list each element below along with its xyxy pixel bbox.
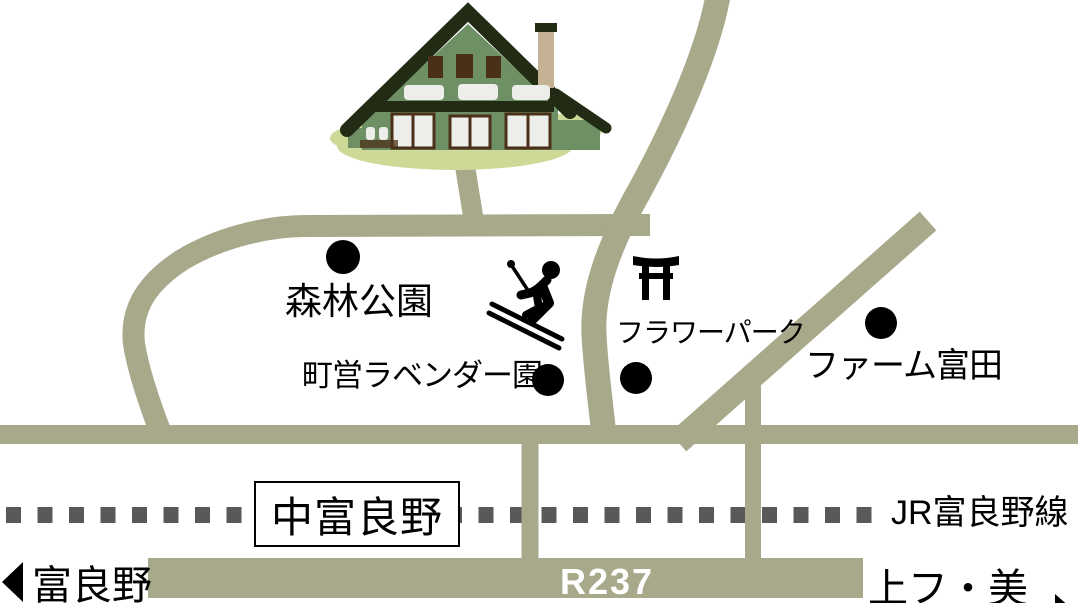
house-chimney xyxy=(535,23,557,88)
access-map: 森林公園 町営ラベンダー園 フラワーパーク ファーム富田 中富良野 JR富良野線… xyxy=(0,0,1078,603)
poi-dot-farm-tomita xyxy=(865,307,897,339)
shrine-torii-icon xyxy=(633,256,679,300)
arrow-right-icon xyxy=(1055,594,1078,603)
arrow-left-icon xyxy=(2,562,23,602)
flower-park-label: フラワーパーク xyxy=(616,319,805,347)
railway-line-label: JR富良野線 xyxy=(891,496,1069,530)
house-step xyxy=(360,140,398,148)
road-s-curve xyxy=(594,0,718,436)
station-box: 中富良野 xyxy=(254,481,460,547)
house-main-windows xyxy=(392,114,550,148)
lavender-garden-label: 町営ラベンダー園 xyxy=(302,360,542,391)
road-loop-west xyxy=(133,225,650,436)
lodge-house-illustration xyxy=(330,12,606,170)
route-r237-label: R237 xyxy=(560,561,654,603)
road-main-horizontal xyxy=(0,425,1078,444)
route-r237-bar xyxy=(148,558,863,598)
direction-west: 富良野 xyxy=(2,553,152,603)
direction-east-label: 上フ・美瑛 xyxy=(868,556,1046,603)
road-house-access xyxy=(464,160,475,228)
farm-tomita-label: ファーム富田 xyxy=(805,349,1002,383)
house-balcony-band xyxy=(372,101,554,112)
direction-west-label: 富良野 xyxy=(32,553,152,603)
forest-park-label: 森林公園 xyxy=(285,283,433,320)
house-gable-windows xyxy=(428,54,501,78)
poi-dot-flower-park xyxy=(620,362,652,394)
poi-dot-forest-park xyxy=(326,240,360,274)
station-label: 中富良野 xyxy=(271,484,443,545)
direction-east: 上フ・美瑛 xyxy=(868,556,1078,603)
downhill-skier-icon xyxy=(489,260,562,348)
